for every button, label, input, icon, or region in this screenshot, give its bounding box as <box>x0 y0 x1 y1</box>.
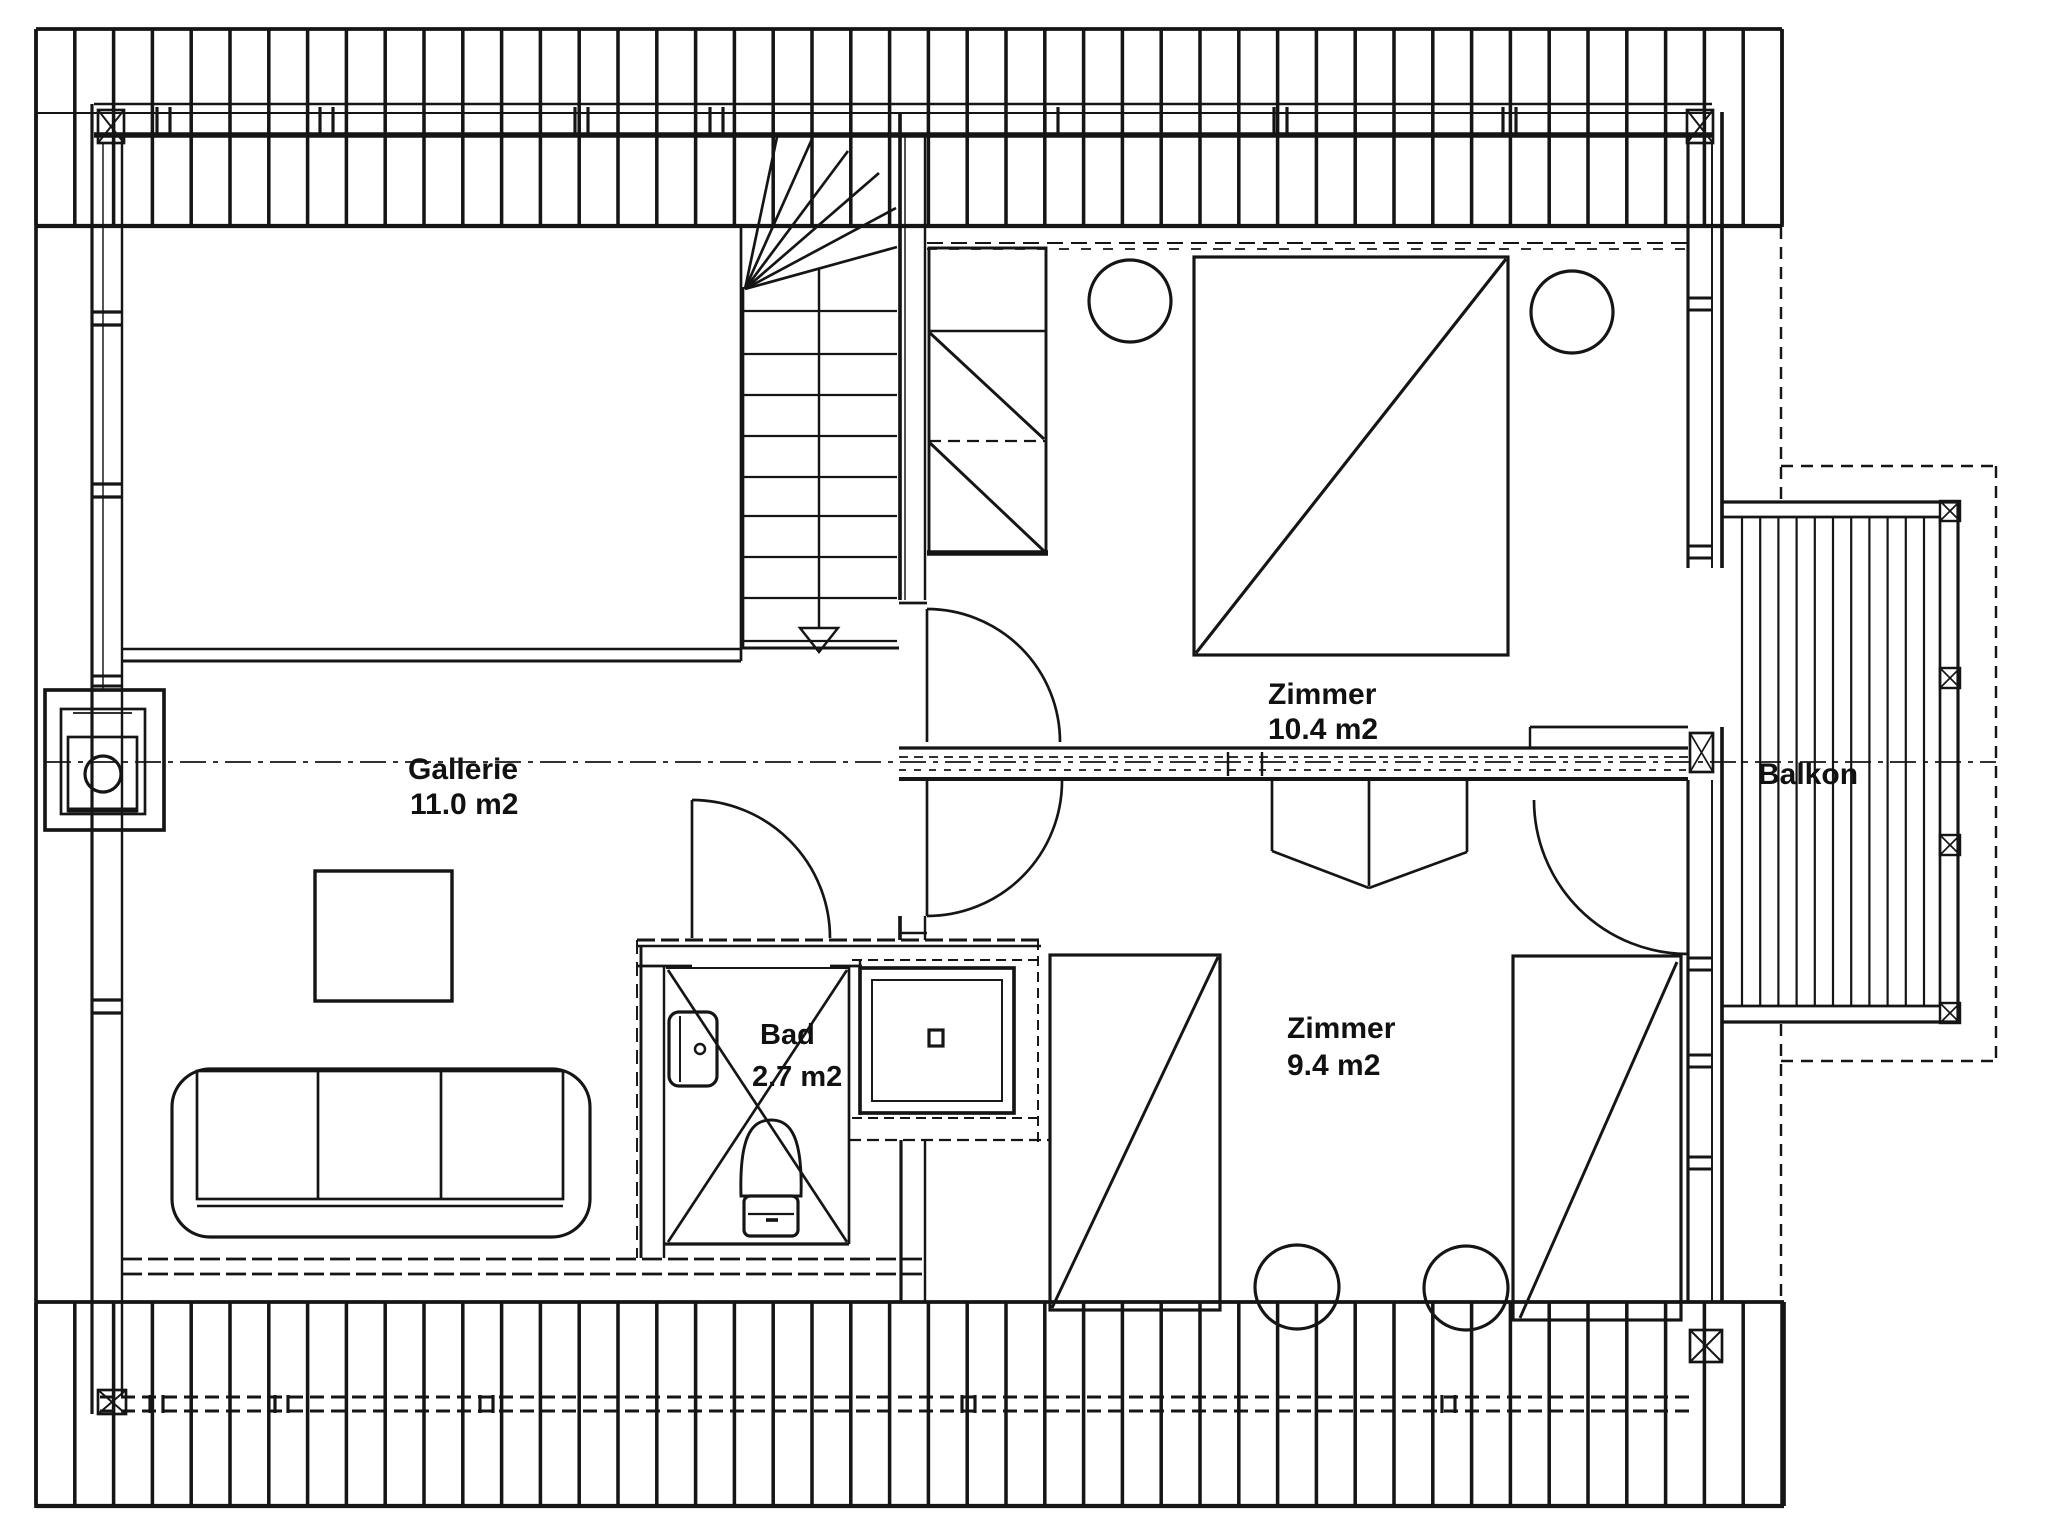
svg-text:Zimmer: Zimmer <box>1287 1012 1396 1045</box>
svg-text:Zimmer: Zimmer <box>1268 678 1377 711</box>
svg-text:11.0 m2: 11.0 m2 <box>410 788 518 821</box>
svg-text:10.4 m2: 10.4 m2 <box>1268 713 1378 746</box>
svg-text:9.4 m2: 9.4 m2 <box>1287 1049 1380 1082</box>
svg-text:Bad: Bad <box>760 1019 815 1051</box>
svg-text:Balkon: Balkon <box>1758 758 1858 791</box>
svg-text:Gallerie: Gallerie <box>408 753 518 786</box>
svg-text:2.7 m2: 2.7 m2 <box>752 1061 842 1093</box>
